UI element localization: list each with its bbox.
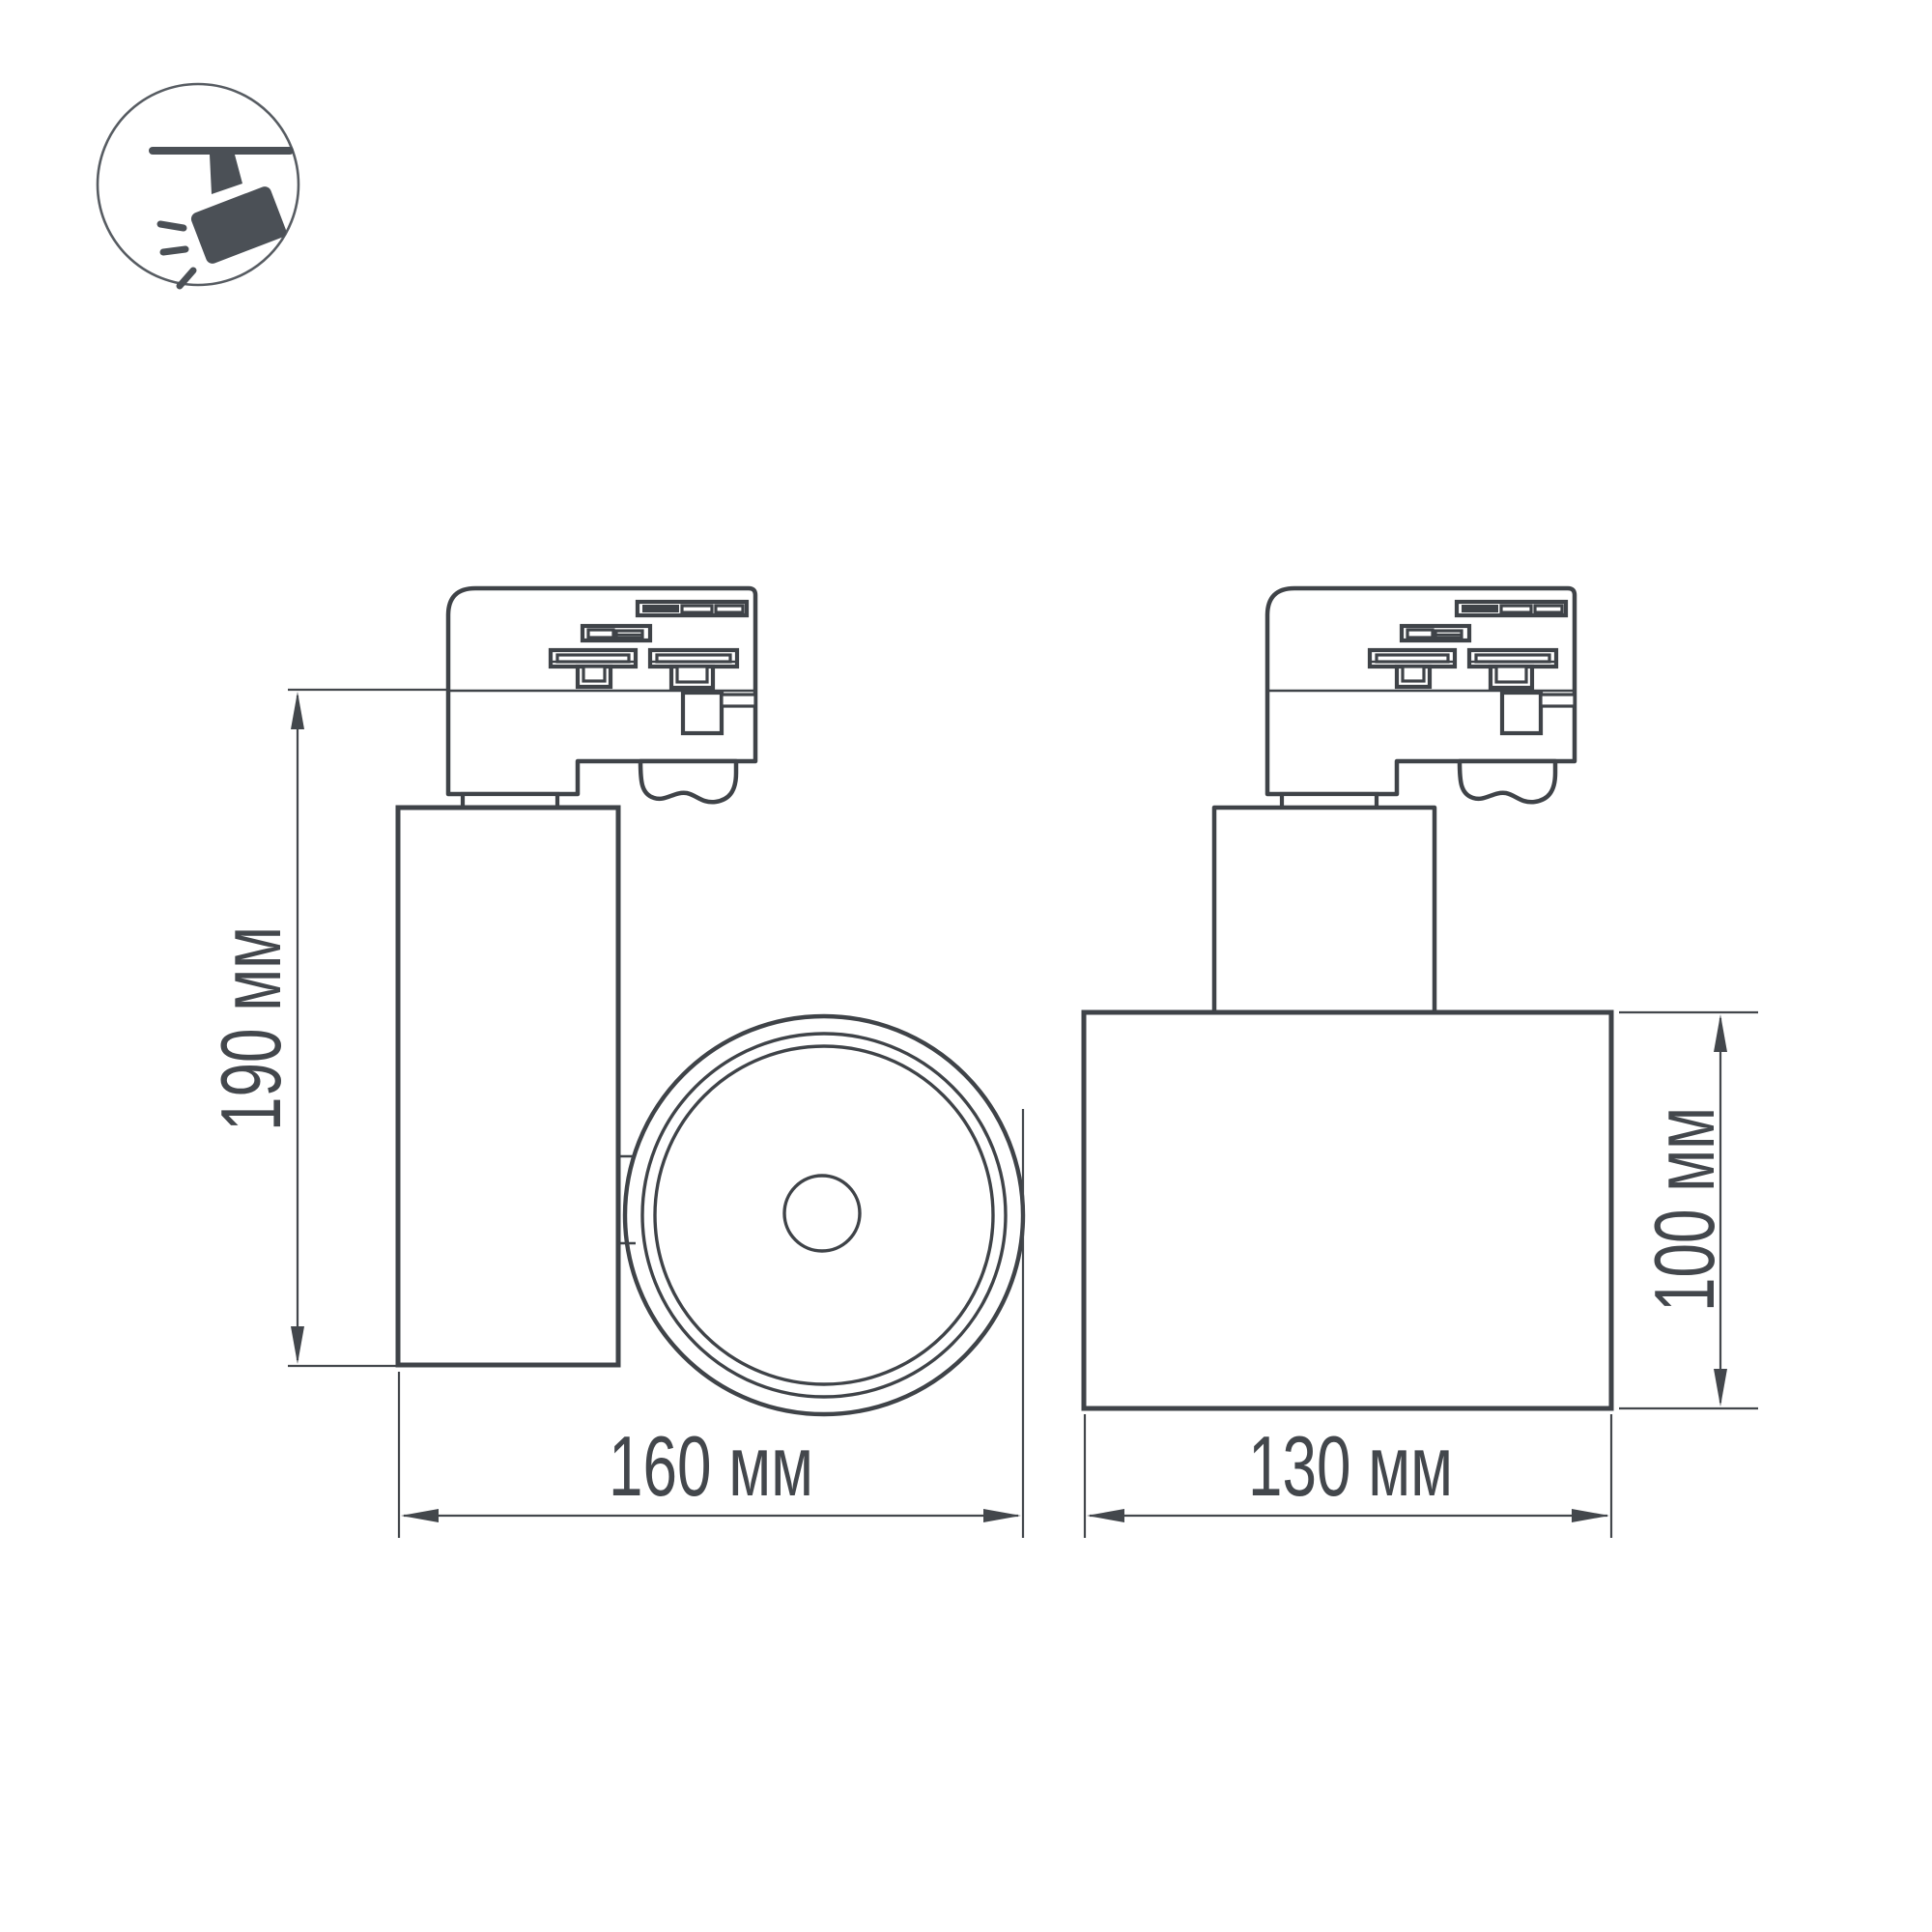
dimension-drawing: 190 мм 160 мм 100 мм [0, 0, 1932, 1932]
mount-block-front [1214, 808, 1435, 1012]
technical-drawing-page: 190 мм 160 мм 100 мм [0, 0, 1932, 1932]
dimension-label-width-front: 130 мм [1248, 1418, 1453, 1514]
lamp-body-front [1084, 1012, 1611, 1408]
front-view-drawing: 100 мм 130 мм [1084, 588, 1758, 1538]
width-dimension-front: 130 мм [1085, 1414, 1611, 1538]
dimension-label-width-side: 160 мм [609, 1418, 813, 1514]
track-adapter-side [448, 588, 755, 802]
height-dimension-front: 100 мм [1619, 1012, 1758, 1408]
lens-center-dot [784, 1176, 860, 1251]
dimension-label-height-front: 100 мм [1636, 1107, 1732, 1312]
icon-circle [98, 84, 298, 285]
lens-face [625, 1016, 1023, 1414]
dimension-label-height-side: 190 мм [203, 926, 298, 1131]
side-view-drawing: 190 мм 160 мм [203, 588, 1023, 1538]
track-spotlight-icon [98, 84, 298, 286]
lamp-body-side [398, 808, 618, 1365]
track-adapter-front [1267, 588, 1575, 802]
